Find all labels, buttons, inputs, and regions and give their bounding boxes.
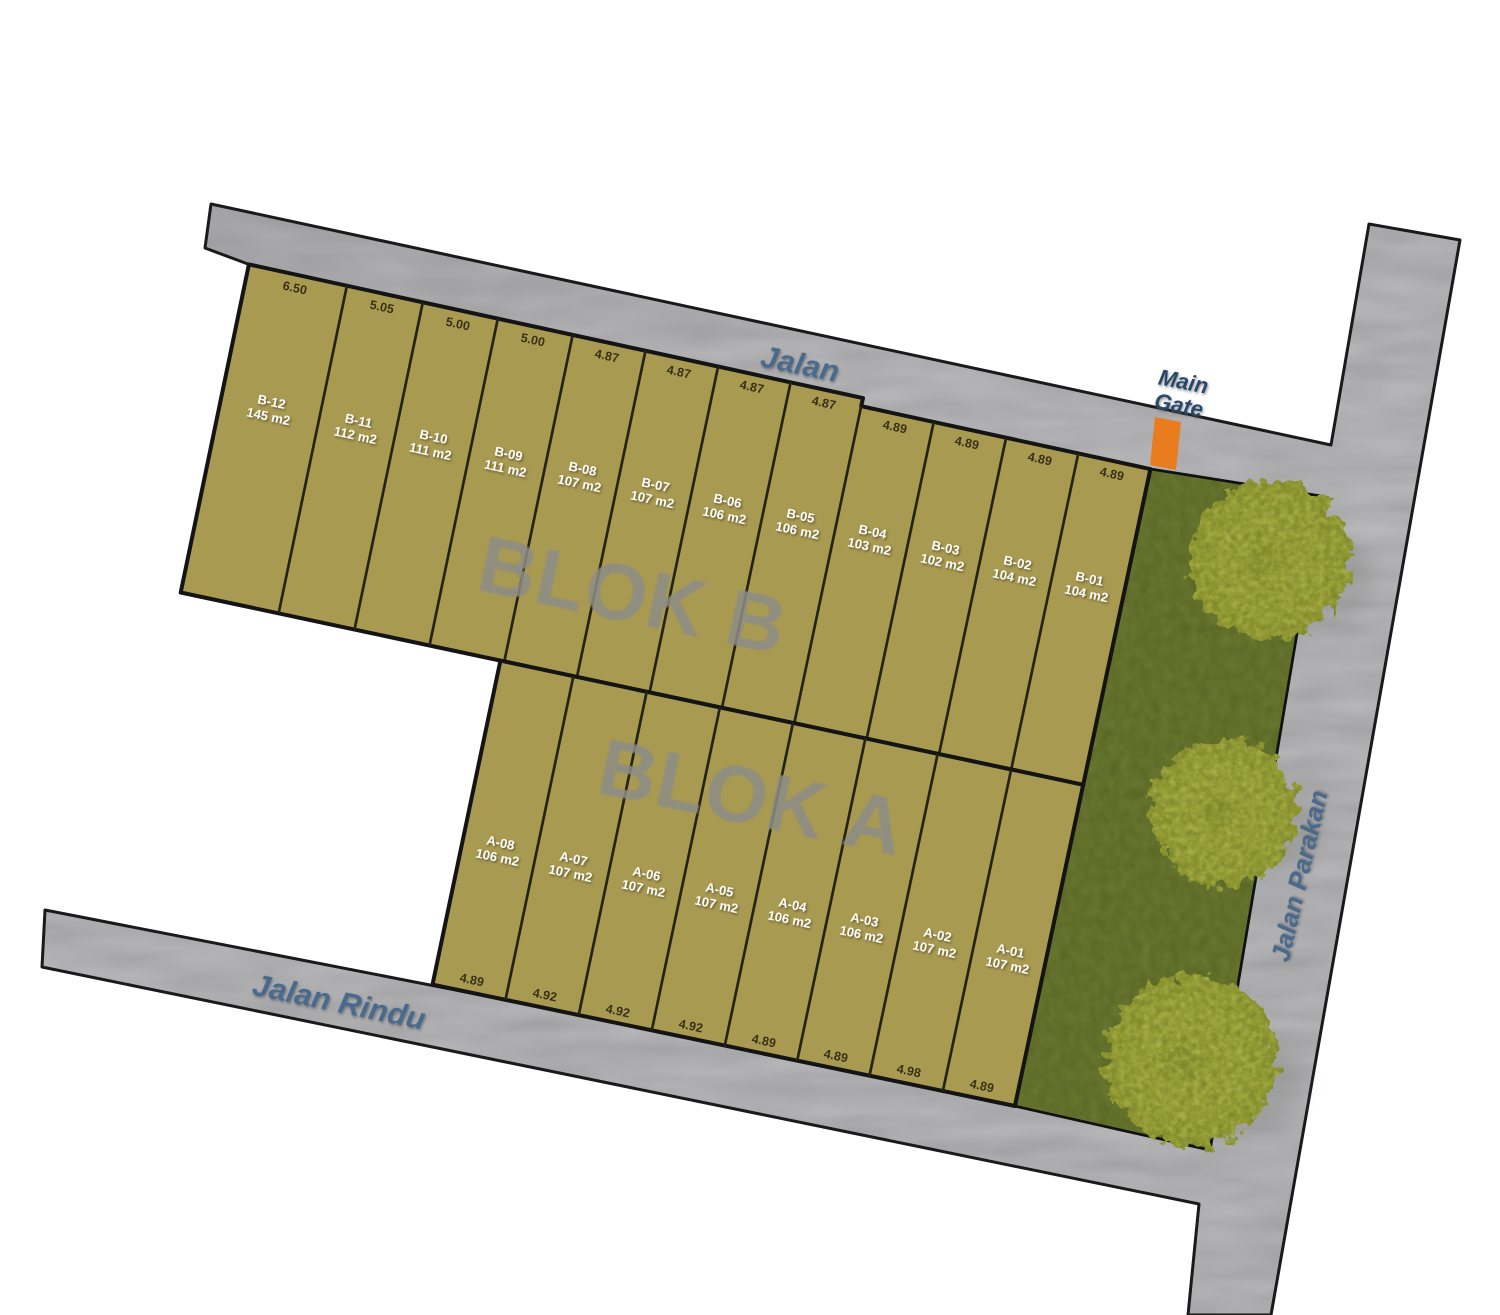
svg-text:MainGate: MainGate — [1152, 365, 1211, 423]
